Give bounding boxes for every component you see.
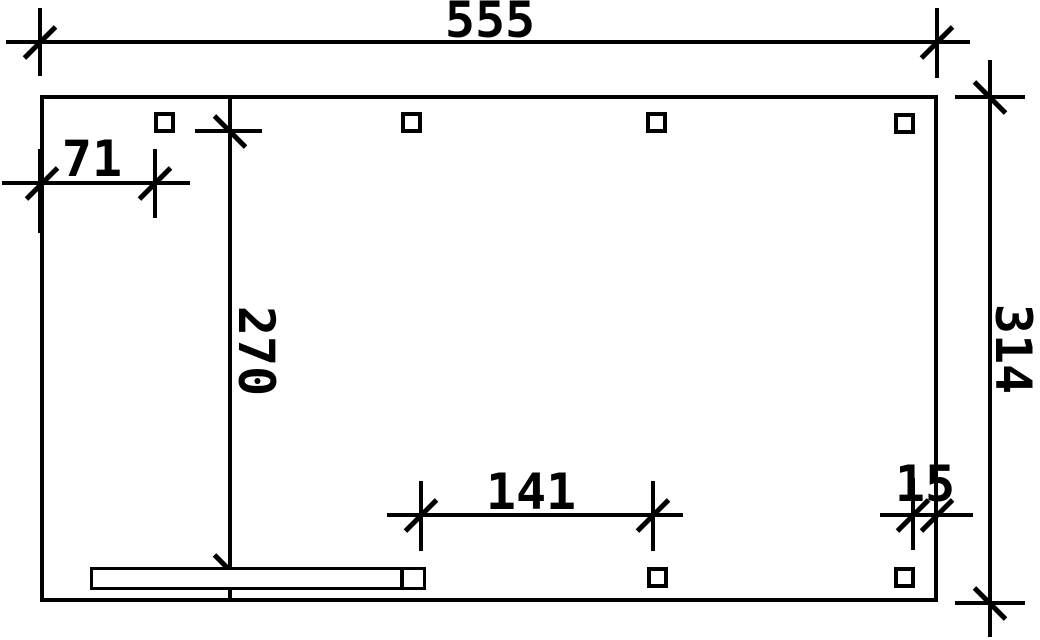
plank-bar bbox=[90, 567, 426, 590]
dimension-line-right-inset bbox=[880, 513, 973, 517]
dimension-label-left-inset: 71 bbox=[62, 134, 122, 184]
dimension-label-inner-height: 270 bbox=[231, 306, 281, 396]
post-marker bbox=[154, 112, 175, 133]
dimension-label-right-inset: 15 bbox=[895, 459, 955, 509]
plan-outline bbox=[40, 95, 938, 602]
post-marker bbox=[894, 567, 915, 588]
post-marker bbox=[647, 567, 668, 588]
dimension-label-top-width: 555 bbox=[445, 0, 535, 45]
post-marker bbox=[894, 113, 915, 134]
technical-drawing: 555 71 270 314 141 15 bbox=[0, 0, 1040, 640]
dimension-label-bottom-span: 141 bbox=[486, 467, 576, 517]
post-marker bbox=[646, 112, 667, 133]
extension-line bbox=[38, 149, 42, 233]
post-marker bbox=[401, 112, 422, 133]
plank-divider-line bbox=[400, 567, 404, 590]
dimension-label-right-height: 314 bbox=[988, 304, 1038, 394]
